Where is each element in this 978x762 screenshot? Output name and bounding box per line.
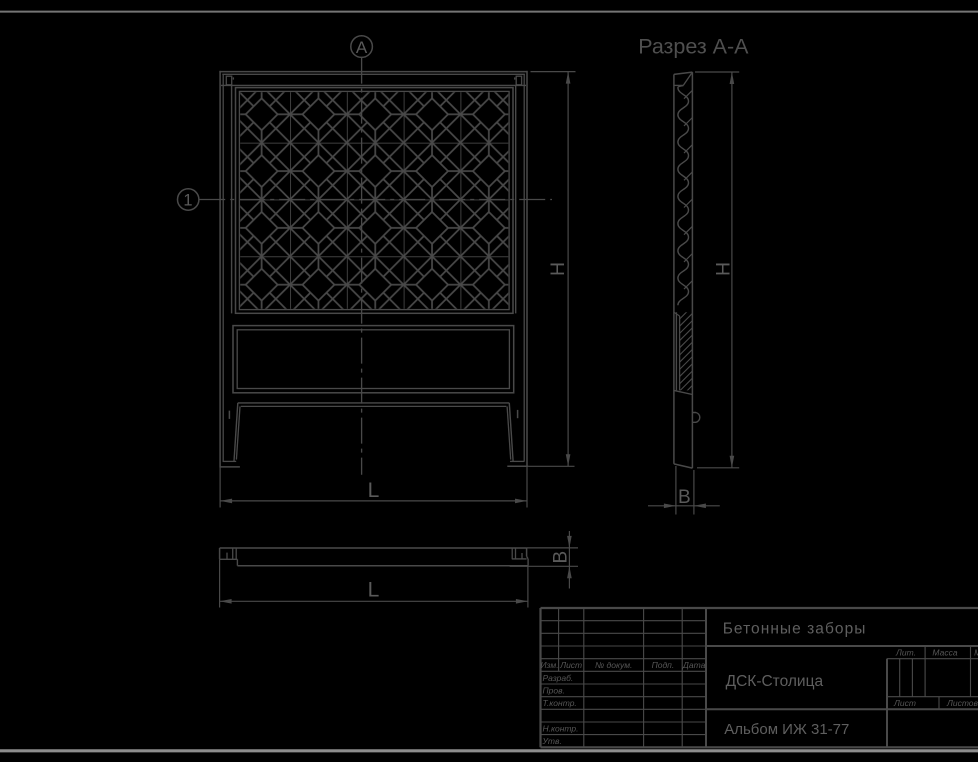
svg-text:Лист: Лист: [559, 660, 582, 670]
svg-text:Разраб.: Разраб.: [543, 673, 574, 683]
svg-text:Альбом ИЖ 31-77: Альбом ИЖ 31-77: [724, 721, 849, 738]
svg-text:Пров.: Пров.: [543, 686, 565, 696]
svg-text:В: В: [678, 487, 691, 508]
svg-text:L: L: [368, 479, 380, 502]
svg-text:Н.контр.: Н.контр.: [543, 724, 579, 734]
svg-text:Н: Н: [712, 262, 734, 276]
svg-text:L: L: [368, 579, 380, 602]
svg-text:1: 1: [183, 191, 192, 209]
svg-text:Листов: Листов: [946, 698, 978, 708]
svg-text:Масса: Масса: [932, 648, 957, 658]
svg-text:Разрез А-А: Разрез А-А: [638, 35, 749, 59]
svg-text:Лист: Лист: [893, 698, 916, 708]
svg-text:Изм.: Изм.: [540, 660, 558, 670]
svg-text:А: А: [356, 38, 368, 57]
svg-text:Т.контр.: Т.контр.: [543, 698, 577, 708]
svg-text:Н: Н: [547, 262, 569, 276]
svg-text:Подп.: Подп.: [652, 660, 675, 670]
svg-text:ДСК-Столица: ДСК-Столица: [726, 673, 824, 690]
svg-text:В: В: [551, 551, 572, 564]
svg-text:Дата: Дата: [682, 660, 706, 670]
svg-text:Утв.: Утв.: [542, 736, 562, 746]
svg-text:Лит.: Лит.: [895, 648, 916, 658]
svg-text:Масштаб: Масштаб: [974, 648, 978, 658]
svg-text:Бетонные заборы: Бетонные заборы: [723, 621, 867, 638]
svg-text:№ докум.: № докум.: [595, 660, 632, 670]
